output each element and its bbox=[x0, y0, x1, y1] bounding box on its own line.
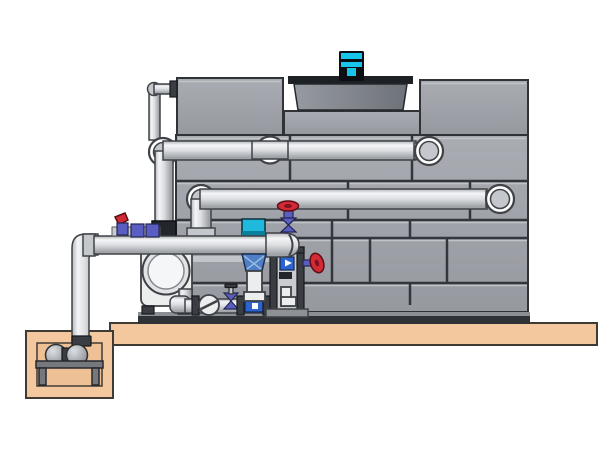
vent-stub bbox=[154, 84, 171, 94]
pipe-b2-run bbox=[200, 189, 487, 209]
fan-deck-band bbox=[284, 111, 420, 135]
pipe-a-coupling bbox=[252, 141, 288, 159]
pump-foot-left bbox=[142, 306, 154, 314]
pump-inlet-face bbox=[148, 253, 184, 289]
fan-motor-core bbox=[347, 68, 356, 76]
vent-flange bbox=[170, 81, 177, 97]
ball-valve-body-1 bbox=[117, 223, 128, 235]
tower-top-box-left bbox=[177, 78, 283, 135]
ball-valve-body-2 bbox=[131, 224, 144, 237]
small-gate-valve-handle bbox=[225, 284, 237, 288]
fan-motor-band bbox=[341, 62, 362, 67]
concrete-slab bbox=[110, 323, 597, 345]
fan-motor bbox=[339, 51, 364, 81]
filter-drain-elbow bbox=[281, 297, 296, 306]
pipe-a-right-elbow-cap bbox=[420, 142, 439, 161]
vertical-pump-collar bbox=[244, 292, 265, 301]
pipe-b-flange bbox=[83, 234, 95, 256]
manifold-flange-2 bbox=[237, 296, 244, 315]
fan-cowl bbox=[294, 84, 407, 110]
pipe-b-run bbox=[94, 236, 270, 254]
vent-pipe bbox=[149, 90, 160, 140]
gate-valve-hub bbox=[284, 204, 292, 208]
scene-canvas bbox=[0, 0, 600, 450]
pump-base-label bbox=[252, 303, 258, 309]
platform-leg-right bbox=[92, 368, 99, 385]
tower-top-box-right bbox=[420, 80, 528, 135]
cooling-tower-illustration bbox=[0, 0, 600, 450]
pipe-a-run bbox=[163, 141, 416, 160]
pipe-b2-right-elbow-cap bbox=[491, 190, 510, 209]
filter-rail-right bbox=[297, 247, 304, 314]
ball-valve-body-3 bbox=[146, 224, 159, 237]
fan-motor-cap bbox=[341, 53, 362, 59]
ground bbox=[26, 323, 597, 398]
ball-valve-cluster bbox=[112, 213, 160, 237]
tower-base-dark bbox=[138, 316, 530, 324]
filter-control-box bbox=[279, 272, 292, 279]
sump-pump-platform bbox=[36, 361, 103, 368]
vertical-pump-head bbox=[242, 219, 265, 237]
manifold-flange-1 bbox=[192, 296, 199, 315]
filter-base bbox=[266, 309, 308, 317]
platform-leg-left bbox=[39, 368, 46, 385]
vertical-pump-column bbox=[247, 271, 262, 293]
pipe-b-end-sleeve bbox=[266, 233, 299, 257]
